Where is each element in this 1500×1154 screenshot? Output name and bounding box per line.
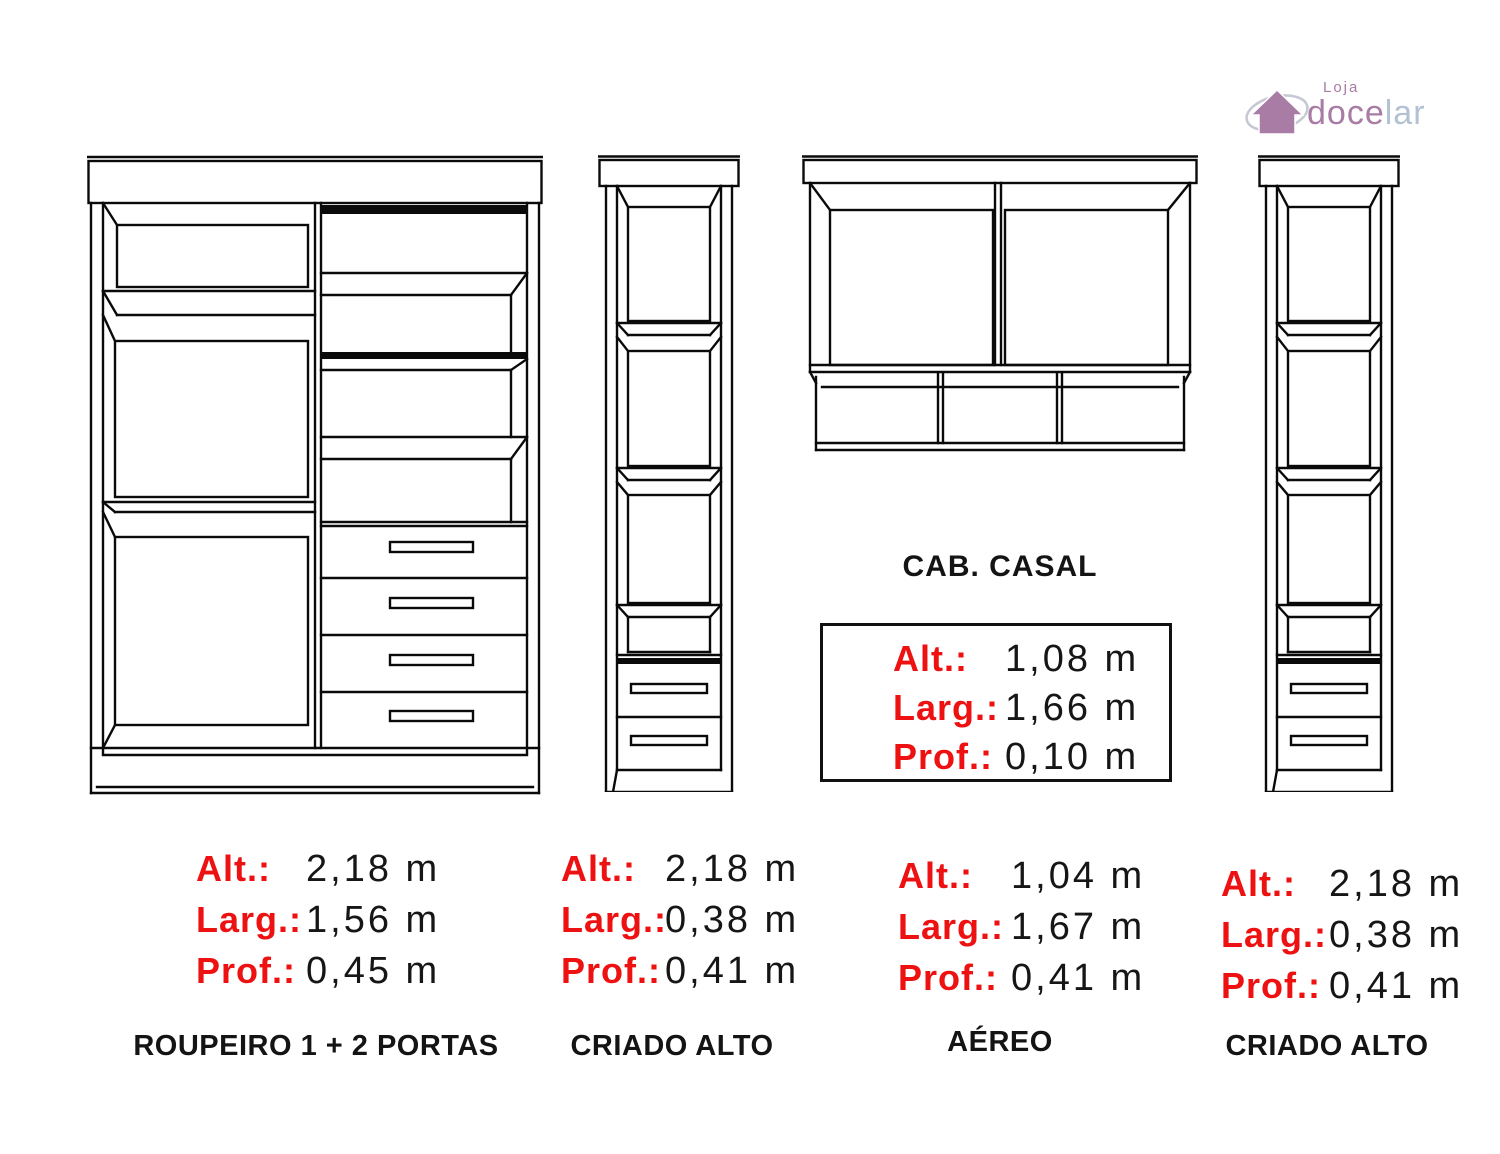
alt-value: 2,18 m	[306, 844, 440, 895]
alt-value: 2,18 m	[1329, 859, 1463, 910]
larg-label: Larg.:	[1221, 909, 1329, 960]
spec-row-larg: Larg.: 1,67 m	[898, 901, 1145, 952]
logo-doce-text: doce	[1307, 94, 1385, 132]
spec-row-alt: Alt.: 1,08 m	[893, 634, 1139, 683]
prof-label: Prof.:	[561, 945, 665, 996]
alt-value: 1,08 m	[1005, 635, 1139, 684]
aereo-spec: Alt.: 1,04 m Larg.: 1,67 m Prof.: 0,41 m	[898, 850, 1145, 1003]
larg-value: 1,67 m	[1011, 902, 1145, 953]
alt-value: 1,04 m	[1011, 851, 1145, 902]
larg-value: 1,66 m	[1005, 684, 1139, 733]
prof-label: Prof.:	[893, 732, 1005, 781]
criado-alto-2-caption: CRIADO ALTO	[1225, 1030, 1428, 1063]
alt-label: Alt.:	[561, 843, 665, 894]
spec-row-larg: Larg.: 1,66 m	[893, 683, 1139, 732]
prof-label: Prof.:	[196, 945, 306, 996]
alt-value: 2,18 m	[665, 844, 799, 895]
cab-casal-info-box: Alt.: 1,08 m Larg.: 1,66 m Prof.: 0,10 m	[820, 623, 1172, 782]
spec-row-prof: Prof.: 0,41 m	[898, 952, 1145, 1003]
spec-row-alt: Alt.: 2,18 m	[196, 843, 440, 894]
prof-label: Prof.:	[1221, 960, 1329, 1011]
larg-label: Larg.:	[893, 683, 1005, 732]
roupeiro-drawing	[87, 155, 543, 795]
prof-value: 0,41 m	[1329, 961, 1463, 1012]
criado-alto-1-spec: Alt.: 2,18 m Larg.: 0,38 m Prof.: 0,41 m	[561, 843, 799, 996]
spec-row-prof: Prof.: 0,45 m	[196, 945, 440, 996]
cab-casal-title: CAB. CASAL	[903, 550, 1098, 584]
spec-row-prof: Prof.: 0,41 m	[1221, 960, 1463, 1011]
alt-label: Alt.:	[1221, 858, 1329, 909]
spec-row-prof: Prof.: 0,41 m	[561, 945, 799, 996]
logo-lar-text: lar	[1385, 94, 1426, 132]
larg-label: Larg.:	[196, 894, 306, 945]
roupeiro-spec: Alt.: 2,18 m Larg.: 1,56 m Prof.: 0,45 m	[196, 843, 440, 996]
prof-value: 0,10 m	[1005, 733, 1139, 782]
larg-value: 0,38 m	[1329, 910, 1463, 961]
criado-alto-1-caption: CRIADO ALTO	[570, 1030, 773, 1063]
larg-label: Larg.:	[561, 894, 665, 945]
larg-label: Larg.:	[898, 901, 1011, 952]
criado-alto-drawing-1	[598, 155, 740, 792]
cab-casal-spec: Alt.: 1,08 m Larg.: 1,66 m Prof.: 0,10 m	[893, 634, 1139, 781]
docelar-house-icon	[1245, 82, 1311, 142]
alt-label: Alt.:	[893, 634, 1005, 683]
criado-alto-2-spec: Alt.: 2,18 m Larg.: 0,38 m Prof.: 0,41 m	[1221, 858, 1463, 1011]
spec-row-alt: Alt.: 1,04 m	[898, 850, 1145, 901]
spec-row-alt: Alt.: 2,18 m	[1221, 858, 1463, 909]
logo: Loja docelar	[1245, 80, 1435, 144]
prof-label: Prof.:	[898, 952, 1011, 1003]
aereo-drawing	[802, 155, 1198, 453]
larg-value: 1,56 m	[306, 895, 440, 946]
prof-value: 0,41 m	[665, 946, 799, 997]
spec-row-prof: Prof.: 0,10 m	[893, 732, 1139, 781]
prof-value: 0,45 m	[306, 946, 440, 997]
spec-row-alt: Alt.: 2,18 m	[561, 843, 799, 894]
spec-row-larg: Larg.: 0,38 m	[1221, 909, 1463, 960]
alt-label: Alt.:	[898, 850, 1011, 901]
spec-row-larg: Larg.: 0,38 m	[561, 894, 799, 945]
roupeiro-caption: ROUPEIRO 1 + 2 PORTAS	[133, 1030, 498, 1063]
furniture-spec-sheet: Loja docelar	[0, 0, 1500, 1154]
prof-value: 0,41 m	[1011, 953, 1145, 1004]
larg-value: 0,38 m	[665, 895, 799, 946]
aereo-caption: AÉREO	[947, 1026, 1053, 1059]
logo-text: Loja docelar	[1307, 80, 1426, 130]
criado-alto-drawing-2	[1258, 155, 1400, 792]
alt-label: Alt.:	[196, 843, 306, 894]
spec-row-larg: Larg.: 1,56 m	[196, 894, 440, 945]
